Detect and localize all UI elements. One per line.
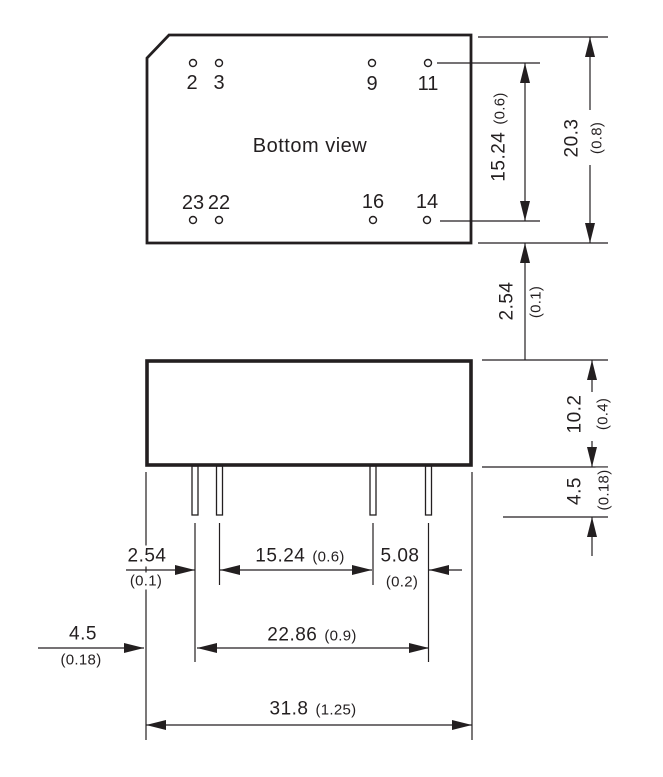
dim-inch: (0.6)	[312, 549, 344, 566]
dim-pin-edge-offset-h-mm: 4.5	[67, 624, 99, 645]
dim-pin-pitch-inch: (0.1)	[128, 573, 164, 590]
dim-pin-edge-offset-mm: 2.54	[497, 280, 518, 323]
dim-pin-span-label: 22.86(0.9)	[265, 625, 358, 646]
bottom-view-title: Bottom view	[251, 135, 369, 157]
pin-hole-11	[425, 60, 432, 67]
dim-pin-group-gap-label: 15.24(0.6)	[253, 546, 346, 567]
dim-pin-length-mm: 4.5	[565, 475, 586, 507]
dim-pin-length-inch: (0.18)	[596, 468, 613, 513]
pin-hole-22	[216, 217, 223, 224]
pin-hole-2	[190, 60, 197, 67]
side-pin-2	[217, 466, 223, 515]
dim-body-height-mm: 10.2	[565, 393, 586, 436]
pin-label-9: 9	[366, 74, 377, 94]
pin-label-2: 2	[186, 73, 197, 93]
dim-pin-pitch-mm: 2.54	[126, 546, 169, 567]
dim-mm: 15.24	[255, 546, 305, 567]
pin-hole-14	[424, 217, 431, 224]
pin-hole-16	[370, 217, 377, 224]
dim-inch: (0.9)	[324, 628, 356, 645]
dim-pin-gap-right-mm: 5.08	[379, 546, 422, 567]
dim-mm: 22.86	[267, 625, 317, 646]
dim-inch: (1.25)	[315, 702, 356, 719]
pin-label-14: 14	[416, 192, 438, 212]
mechanical-drawing-page: 2 3 9 11 23 22 16 14 Bottom view 15.24(0…	[0, 0, 663, 777]
pin-hole-9	[369, 60, 376, 67]
dim-inch: (0.6)	[492, 92, 509, 124]
pin-label-16: 16	[362, 192, 384, 212]
dim-body-depth-mm: 20.3	[562, 117, 583, 160]
dim-body-width-label: 31.8(1.25)	[268, 699, 359, 720]
pin-hole-3	[216, 60, 223, 67]
pin-label-22: 22	[208, 193, 230, 213]
dim-body-height-inch: (0.4)	[595, 396, 612, 432]
dim-mm: 31.8	[270, 699, 309, 720]
side-pin-1	[192, 466, 198, 515]
side-view-body	[147, 361, 471, 465]
dim-pin-gap-right-inch: (0.2)	[384, 574, 420, 591]
side-pin-3	[370, 466, 376, 515]
dim-body-depth-inch: (0.8)	[589, 120, 606, 156]
dim-mm: 15.24	[489, 132, 510, 182]
pin-hole-23	[190, 217, 197, 224]
dim-pin-edge-offset-inch: (0.1)	[528, 284, 545, 320]
side-pin-4	[426, 466, 432, 515]
dim-pin-row-spacing-label: 15.24(0.6)	[489, 90, 510, 183]
pin-label-3: 3	[213, 73, 224, 93]
pin-label-23: 23	[182, 193, 204, 213]
pin-label-11: 11	[418, 74, 439, 94]
dim-pin-edge-offset-h-inch: (0.18)	[59, 652, 104, 669]
